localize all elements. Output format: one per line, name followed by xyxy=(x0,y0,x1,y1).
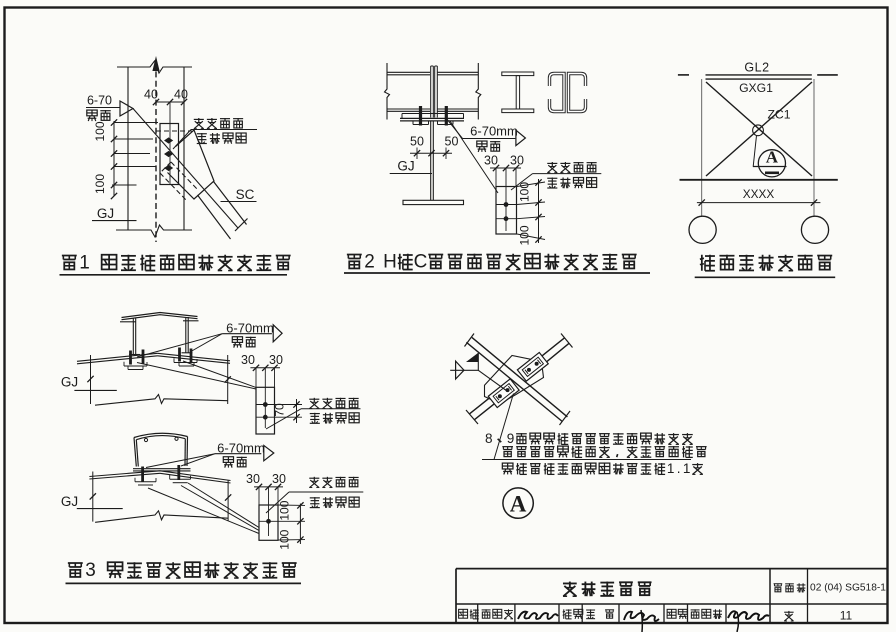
svg-text:XXXX: XXXX xyxy=(743,187,775,201)
svg-text:1: 1 xyxy=(79,252,90,273)
svg-text:11: 11 xyxy=(840,609,853,623)
svg-text:GJ: GJ xyxy=(97,206,114,221)
svg-text:ZC1: ZC1 xyxy=(767,107,790,121)
svg-text:A: A xyxy=(510,492,527,517)
svg-text:6-70mm: 6-70mm xyxy=(470,124,518,139)
svg-text:50: 50 xyxy=(445,135,459,149)
svg-text:30: 30 xyxy=(484,154,498,168)
svg-text:6-70: 6-70 xyxy=(87,94,112,108)
svg-text:70: 70 xyxy=(273,403,287,417)
svg-text:SC: SC xyxy=(236,187,255,202)
svg-text:6-70mm: 6-70mm xyxy=(226,320,274,335)
svg-text:GJ: GJ xyxy=(397,159,414,174)
svg-text:H: H xyxy=(383,251,397,272)
svg-text:1: 1 xyxy=(667,461,675,476)
svg-text:100: 100 xyxy=(518,225,532,245)
svg-text:50: 50 xyxy=(410,135,424,149)
svg-text:30: 30 xyxy=(246,472,260,486)
svg-text:30: 30 xyxy=(269,353,283,367)
svg-text:9: 9 xyxy=(507,431,515,446)
svg-text:2: 2 xyxy=(364,251,375,272)
svg-text:100: 100 xyxy=(278,500,292,520)
svg-text:02 (04) SG518-1: 02 (04) SG518-1 xyxy=(810,583,886,594)
svg-text:100: 100 xyxy=(93,174,107,194)
svg-text:30: 30 xyxy=(272,472,286,486)
svg-text:3: 3 xyxy=(85,560,96,581)
svg-text:1: 1 xyxy=(683,461,691,476)
svg-text:30: 30 xyxy=(241,353,255,367)
svg-text:C: C xyxy=(414,251,428,272)
svg-text:100: 100 xyxy=(93,121,107,141)
svg-text:100: 100 xyxy=(278,529,292,549)
svg-text:40: 40 xyxy=(144,88,158,102)
svg-text:A: A xyxy=(766,148,779,167)
svg-text:40: 40 xyxy=(174,88,188,102)
svg-text:30: 30 xyxy=(510,154,524,168)
svg-text:100: 100 xyxy=(518,182,532,202)
svg-text:8: 8 xyxy=(485,431,493,446)
svg-text:GJ: GJ xyxy=(61,494,78,509)
svg-text:GL2: GL2 xyxy=(744,61,769,75)
svg-text:GXG1: GXG1 xyxy=(739,81,773,95)
svg-text:.: . xyxy=(677,461,681,476)
svg-text:GJ: GJ xyxy=(61,375,78,390)
